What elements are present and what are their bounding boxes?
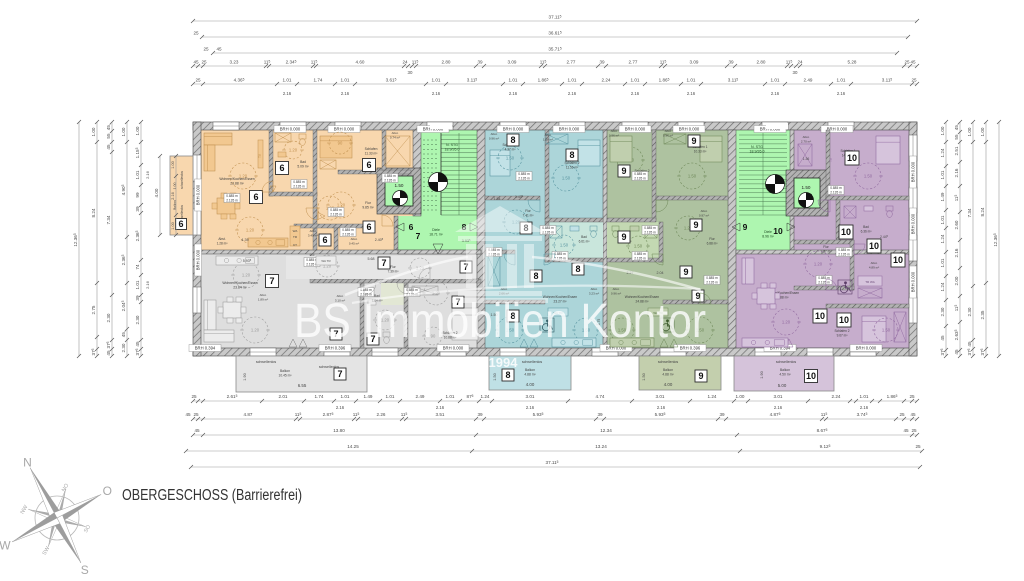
svg-text:45: 45 — [106, 144, 111, 150]
svg-text:4.88 m²: 4.88 m² — [524, 373, 536, 377]
svg-text:BRH 0.000: BRH 0.000 — [559, 127, 580, 132]
svg-text:2.60: 2.60 — [954, 220, 959, 229]
svg-text:2.16: 2.16 — [860, 405, 869, 410]
svg-text:7.34: 7.34 — [967, 208, 972, 217]
svg-text:2.24: 2.24 — [602, 78, 611, 83]
svg-text:55: 55 — [106, 133, 111, 139]
svg-text:2.135 m: 2.135 m — [518, 176, 530, 180]
svg-text:1.00: 1.00 — [173, 183, 177, 190]
svg-text:8.24: 8.24 — [980, 207, 985, 216]
svg-text:2.16: 2.16 — [171, 192, 175, 199]
svg-text:10: 10 — [815, 311, 825, 321]
svg-text:2.16: 2.16 — [283, 91, 292, 96]
svg-text:10: 10 — [841, 227, 851, 237]
svg-text:6.36 m²: 6.36 m² — [861, 230, 872, 234]
svg-text:10: 10 — [847, 153, 857, 163]
svg-text:Abst.: Abst. — [491, 132, 498, 136]
svg-text:Balkon: Balkon — [173, 200, 177, 210]
svg-text:2.30: 2.30 — [940, 307, 945, 316]
svg-text:10: 10 — [773, 226, 783, 236]
svg-text:1.50: 1.50 — [642, 373, 646, 380]
svg-text:9: 9 — [743, 222, 748, 232]
svg-text:39: 39 — [477, 412, 483, 417]
svg-text:Balkon: Balkon — [663, 368, 673, 372]
svg-text:1.20: 1.20 — [242, 273, 251, 278]
svg-text:2.49: 2.49 — [416, 394, 425, 399]
svg-text:45: 45 — [967, 341, 972, 347]
svg-text:2.16: 2.16 — [568, 91, 577, 96]
svg-text:2.16: 2.16 — [771, 91, 780, 96]
svg-text:schwellenlos: schwellenlos — [776, 360, 797, 364]
svg-text:39: 39 — [135, 206, 140, 212]
svg-text:1.20: 1.20 — [814, 262, 823, 267]
svg-text:BRH 0.000: BRH 0.000 — [334, 127, 355, 132]
svg-text:45: 45 — [903, 428, 909, 433]
svg-text:25: 25 — [904, 60, 910, 65]
svg-text:45: 45 — [185, 412, 191, 417]
svg-text:1.90: 1.90 — [760, 371, 764, 378]
svg-text:2.16: 2.16 — [657, 405, 666, 410]
svg-text:2.16: 2.16 — [837, 91, 846, 96]
svg-text:1.50: 1.50 — [506, 156, 515, 161]
svg-text:N. STG: N. STG — [446, 143, 458, 147]
svg-text:7: 7 — [337, 369, 342, 379]
svg-text:2.16: 2.16 — [436, 405, 445, 410]
svg-text:4.00: 4.00 — [154, 188, 159, 197]
svg-text:6: 6 — [253, 192, 258, 202]
svg-text:1.74: 1.74 — [315, 394, 324, 399]
svg-text:2.35: 2.35 — [980, 310, 985, 319]
svg-text:2.16: 2.16 — [145, 170, 150, 179]
svg-text:Balkon: Balkon — [525, 368, 535, 372]
svg-text:1.20: 1.20 — [251, 328, 260, 333]
svg-text:1.00: 1.00 — [171, 161, 175, 168]
svg-text:23.88 m²: 23.88 m² — [230, 182, 244, 186]
svg-text:Flur: Flur — [365, 201, 372, 205]
svg-text:0.96 m²: 0.96 m² — [609, 134, 619, 138]
svg-text:1.00: 1.00 — [91, 127, 96, 136]
svg-text:1.50: 1.50 — [882, 328, 891, 333]
svg-text:Diele: Diele — [432, 228, 440, 232]
svg-text:2.80: 2.80 — [442, 60, 451, 65]
svg-text:45: 45 — [106, 350, 111, 356]
svg-text:2.135 m: 2.135 m — [542, 230, 554, 234]
svg-text:1.01: 1.01 — [283, 78, 292, 83]
svg-text:Wohnen/Kochen/Essen: Wohnen/Kochen/Essen — [219, 177, 254, 181]
svg-text:2.70 m²: 2.70 m² — [801, 140, 811, 144]
svg-text:1.24: 1.24 — [940, 234, 945, 243]
svg-text:2.80: 2.80 — [757, 60, 766, 65]
svg-text:9.67 m²: 9.67 m² — [837, 334, 848, 338]
svg-text:39: 39 — [135, 295, 140, 301]
svg-text:1.50: 1.50 — [395, 183, 404, 188]
svg-text:4.39: 4.39 — [241, 238, 248, 242]
svg-text:45: 45 — [910, 412, 916, 417]
svg-text:Abst.: Abst. — [218, 237, 225, 241]
svg-text:10: 10 — [893, 255, 903, 265]
svg-text:Bad: Bad — [300, 160, 306, 164]
svg-text:12.34: 12.34 — [600, 428, 612, 433]
svg-text:schwellenlos: schwellenlos — [180, 171, 184, 189]
svg-text:Abst.: Abst. — [803, 135, 810, 139]
svg-text:WA TR: WA TR — [321, 259, 331, 263]
svg-text:BRH 0.000: BRH 0.000 — [280, 127, 301, 132]
svg-text:4.60: 4.60 — [356, 60, 365, 65]
svg-text:8: 8 — [533, 271, 538, 281]
svg-text:2.04: 2.04 — [657, 271, 664, 275]
svg-text:7: 7 — [269, 276, 274, 286]
svg-text:6: 6 — [178, 219, 183, 229]
svg-text:10.33 m²: 10.33 m² — [694, 150, 707, 154]
svg-text:8.24: 8.24 — [91, 208, 96, 217]
svg-text:1.00: 1.00 — [135, 126, 140, 135]
svg-text:0.96 m²: 0.96 m² — [663, 134, 673, 138]
svg-text:1.90: 1.90 — [243, 373, 247, 380]
svg-text:6: 6 — [409, 222, 414, 232]
svg-text:1.01: 1.01 — [631, 78, 640, 83]
svg-text:6: 6 — [366, 160, 371, 170]
svg-text:9.85 m²: 9.85 m² — [362, 206, 374, 210]
svg-text:2.135 m: 2.135 m — [330, 212, 342, 216]
svg-text:2.16: 2.16 — [336, 405, 345, 410]
svg-text:Diele: Diele — [764, 230, 772, 234]
svg-text:25: 25 — [193, 31, 199, 36]
svg-text:Flur: Flur — [390, 265, 396, 269]
svg-text:9: 9 — [621, 166, 626, 176]
svg-text:1.36: 1.36 — [803, 157, 810, 161]
svg-text:BRH 0.394: BRH 0.394 — [195, 346, 216, 351]
svg-text:2.135 m: 2.135 m — [706, 280, 718, 284]
svg-text:S: S — [81, 563, 89, 577]
svg-text:39: 39 — [599, 60, 605, 65]
svg-text:1.01: 1.01 — [940, 258, 945, 267]
svg-text:2.16: 2.16 — [145, 280, 150, 289]
svg-text:1.01: 1.01 — [386, 394, 395, 399]
svg-text:55: 55 — [954, 134, 959, 140]
svg-text:1.28 m²: 1.28 m² — [217, 242, 228, 246]
svg-text:3.51: 3.51 — [436, 412, 445, 417]
svg-text:5.00: 5.00 — [778, 383, 787, 388]
svg-text:1.28 m²: 1.28 m² — [543, 138, 553, 142]
svg-text:Schlafen 2: Schlafen 2 — [564, 161, 579, 165]
svg-text:2.51: 2.51 — [954, 146, 959, 155]
svg-text:6: 6 — [322, 235, 327, 245]
svg-text:25: 25 — [909, 394, 915, 399]
svg-text:N: N — [23, 455, 32, 469]
svg-text:2.30: 2.30 — [135, 315, 140, 324]
svg-text:Bad: Bad — [581, 235, 587, 239]
svg-text:schwellenlos: schwellenlos — [256, 360, 277, 364]
svg-text:14.25: 14.25 — [347, 444, 359, 449]
svg-text:74: 74 — [135, 264, 140, 270]
svg-text:11.56 m²: 11.56 m² — [566, 166, 578, 170]
svg-text:45: 45 — [954, 349, 959, 355]
svg-text:2.77: 2.77 — [629, 60, 638, 65]
svg-text:25: 25 — [911, 78, 917, 83]
svg-text:BRH 0.000: BRH 0.000 — [911, 213, 916, 234]
svg-text:11.33 m²: 11.33 m² — [365, 152, 379, 156]
svg-text:2.135 m: 2.135 m — [342, 232, 354, 236]
svg-text:1.20: 1.20 — [246, 228, 255, 233]
svg-text:KT: KT — [293, 243, 297, 247]
svg-text:2.75: 2.75 — [91, 305, 96, 314]
svg-text:25: 25 — [899, 412, 905, 417]
svg-text:8: 8 — [575, 264, 580, 274]
svg-text:1.01: 1.01 — [568, 78, 577, 83]
svg-text:23.84 m²: 23.84 m² — [233, 286, 247, 290]
svg-text:36.615: 36.615 — [548, 30, 562, 35]
svg-text:N. STG: N. STG — [751, 145, 763, 149]
svg-text:Balkon: Balkon — [280, 369, 290, 373]
svg-text:12.365: 12.365 — [73, 233, 78, 247]
svg-text:1.50: 1.50 — [562, 176, 571, 181]
svg-text:2.135 m: 2.135 m — [634, 176, 646, 180]
svg-text:Abst.: Abst. — [613, 287, 620, 291]
svg-text:7.41 m²: 7.41 m² — [523, 214, 534, 218]
svg-text:7.39 m²: 7.39 m² — [388, 270, 399, 274]
svg-text:BRH 0.000: BRH 0.000 — [911, 271, 916, 292]
svg-text:Abst.: Abst. — [260, 293, 267, 297]
svg-text:Abst.: Abst. — [310, 229, 317, 233]
svg-text:1.50: 1.50 — [560, 243, 569, 248]
svg-text:25: 25 — [915, 444, 921, 449]
svg-text:3.01: 3.01 — [774, 394, 783, 399]
svg-text:4.88 m²: 4.88 m² — [662, 373, 674, 377]
svg-text:1.24: 1.24 — [708, 394, 717, 399]
svg-text:2.26: 2.26 — [377, 412, 386, 417]
svg-text:25: 25 — [193, 412, 199, 417]
svg-text:2.135 m: 2.135 m — [293, 184, 305, 188]
svg-text:BRH 0.000: BRH 0.000 — [625, 127, 646, 132]
svg-text:Abst.: Abst. — [351, 237, 358, 241]
svg-text:45,: 45, — [106, 124, 111, 130]
svg-text:1.01: 1.01 — [135, 280, 140, 289]
svg-text:8: 8 — [569, 150, 574, 160]
svg-text:3.23: 3.23 — [230, 60, 239, 65]
svg-text:Abst.: Abst. — [545, 133, 552, 137]
svg-text:18.71 m²: 18.71 m² — [429, 233, 443, 237]
svg-text:seit 1994: seit 1994 — [463, 355, 519, 370]
svg-text:1.01: 1.01 — [341, 78, 350, 83]
svg-text:2.16: 2.16 — [774, 405, 783, 410]
svg-text:45: 45 — [940, 335, 945, 341]
svg-text:2.30: 2.30 — [967, 307, 972, 316]
svg-text:OBERGESCHOSS (Barrierefrei): OBERGESCHOSS (Barrierefrei) — [122, 487, 302, 504]
svg-text:0.97 m²: 0.97 m² — [699, 214, 709, 218]
svg-text:9: 9 — [698, 371, 703, 381]
svg-text:2.30: 2.30 — [106, 313, 111, 322]
svg-text:3.01: 3.01 — [526, 394, 535, 399]
svg-text:7: 7 — [381, 258, 386, 268]
svg-text:1.01: 1.01 — [509, 78, 518, 83]
svg-text:1.01: 1.01 — [860, 394, 869, 399]
svg-text:25: 25 — [911, 428, 917, 433]
svg-text:Bad: Bad — [863, 225, 869, 229]
svg-text:2.16: 2.16 — [509, 91, 518, 96]
svg-text:1.20: 1.20 — [337, 203, 346, 208]
svg-text:1.01: 1.01 — [940, 215, 945, 224]
svg-text:9: 9 — [683, 267, 688, 277]
svg-text:Wohnen/Kochen/Essen: Wohnen/Kochen/Essen — [222, 281, 257, 285]
svg-text:6: 6 — [279, 163, 284, 173]
svg-text:4.00: 4.00 — [526, 382, 535, 387]
svg-text:1.50: 1.50 — [493, 373, 497, 380]
svg-text:1.24: 1.24 — [481, 394, 490, 399]
svg-text:5.68: 5.68 — [368, 257, 375, 261]
svg-text:2.16: 2.16 — [526, 405, 535, 410]
svg-text:45: 45 — [135, 341, 140, 347]
svg-text:2.135 m: 2.135 m — [634, 256, 646, 260]
svg-text:7: 7 — [416, 231, 421, 241]
svg-text:1.50: 1.50 — [802, 185, 811, 190]
svg-text:2.135 m: 2.135 m — [818, 280, 830, 284]
svg-text:45: 45 — [193, 60, 199, 65]
svg-text:2.16: 2.16 — [631, 91, 640, 96]
svg-text:Schlafen: Schlafen — [365, 147, 378, 151]
svg-text:1.01: 1.01 — [432, 78, 441, 83]
svg-text:39: 39 — [728, 60, 734, 65]
svg-text:BS Immobilien Kontor: BS Immobilien Kontor — [294, 295, 706, 348]
svg-text:Flur: Flur — [525, 209, 531, 213]
svg-text:Abst.: Abst. — [665, 129, 672, 133]
svg-text:45: 45 — [910, 60, 916, 65]
svg-text:6.88 m²: 6.88 m² — [707, 242, 718, 246]
svg-text:13.80: 13.80 — [333, 428, 345, 433]
svg-text:1.74: 1.74 — [314, 78, 323, 83]
svg-text:18.9/26.0: 18.9/26.0 — [750, 150, 765, 154]
svg-text:35.715: 35.715 — [548, 46, 562, 51]
svg-text:1.50: 1.50 — [634, 244, 643, 249]
svg-text:schwellenlos: schwellenlos — [658, 360, 679, 364]
svg-text:1.50: 1.50 — [688, 174, 697, 179]
svg-text:1.49: 1.49 — [940, 192, 945, 201]
svg-text:O: O — [103, 484, 112, 498]
svg-text:9: 9 — [621, 232, 626, 242]
svg-text:8: 8 — [505, 370, 510, 380]
svg-text:25: 25 — [203, 47, 209, 52]
svg-text:3.45 m²: 3.45 m² — [308, 234, 318, 238]
svg-text:30: 30 — [408, 70, 413, 75]
svg-text:BRH 0.000: BRH 0.000 — [911, 161, 916, 182]
svg-text:1.49: 1.49 — [364, 394, 373, 399]
svg-text:0.45 m²: 0.45 m² — [349, 242, 359, 246]
svg-text:Abst.: Abst. — [392, 131, 399, 135]
svg-text:5.28: 5.28 — [848, 60, 857, 65]
svg-text:1.24: 1.24 — [940, 148, 945, 157]
svg-text:6: 6 — [366, 222, 371, 232]
svg-text:13.24: 13.24 — [595, 444, 607, 449]
svg-text:2.135 m: 2.135 m — [830, 190, 842, 194]
svg-text:0.96 m²: 0.96 m² — [489, 137, 499, 141]
svg-text:2.16: 2.16 — [687, 91, 696, 96]
svg-text:39: 39 — [477, 60, 483, 65]
svg-text:2.135 m: 2.135 m — [838, 252, 850, 256]
svg-text:6.55: 6.55 — [298, 383, 307, 388]
svg-text:25: 25 — [195, 78, 201, 83]
svg-text:2.16: 2.16 — [954, 168, 959, 177]
svg-text:1.01: 1.01 — [837, 78, 846, 83]
svg-text:1.01: 1.01 — [687, 78, 696, 83]
svg-text:2.77: 2.77 — [567, 60, 576, 65]
svg-text:1.24: 1.24 — [940, 282, 945, 291]
svg-text:10: 10 — [869, 241, 879, 251]
svg-text:10: 10 — [839, 315, 849, 325]
svg-text:BRH 0.000: BRH 0.000 — [856, 346, 877, 351]
svg-text:BRH 0.000: BRH 0.000 — [196, 184, 201, 205]
svg-text:3.09: 3.09 — [508, 60, 517, 65]
svg-text:Balkon: Balkon — [780, 368, 790, 372]
svg-text:4.50 m²: 4.50 m² — [779, 373, 791, 377]
svg-text:1.01: 1.01 — [940, 170, 945, 179]
svg-text:4.74: 4.74 — [596, 394, 605, 399]
svg-text:1.01: 1.01 — [446, 394, 455, 399]
svg-text:9: 9 — [693, 220, 698, 230]
svg-text:Flur: Flur — [823, 245, 829, 249]
svg-text:1.00: 1.00 — [171, 222, 175, 229]
svg-text:1.00: 1.00 — [980, 127, 985, 136]
svg-text:3.01: 3.01 — [656, 394, 665, 399]
svg-text:1.01: 1.01 — [135, 170, 140, 179]
svg-text:schwellenlos: schwellenlos — [522, 360, 543, 364]
svg-text:1.00: 1.00 — [121, 127, 126, 136]
svg-text:BRH 0.000: BRH 0.000 — [196, 249, 201, 270]
svg-text:3.09: 3.09 — [690, 60, 699, 65]
svg-text:24: 24 — [402, 60, 408, 65]
svg-text:1.20: 1.20 — [782, 320, 791, 325]
svg-text:45,: 45, — [954, 124, 959, 130]
svg-text:10.45 m²: 10.45 m² — [278, 374, 292, 378]
svg-text:BRH 0.000: BRH 0.000 — [679, 127, 700, 132]
svg-text:4.37 m²: 4.37 m² — [505, 148, 516, 152]
svg-text:1.00: 1.00 — [967, 127, 972, 136]
svg-text:2.135 m: 2.135 m — [384, 178, 396, 182]
svg-text:Schlafen 2: Schlafen 2 — [834, 329, 849, 333]
svg-text:WA: WA — [293, 229, 298, 233]
svg-text:9: 9 — [691, 136, 696, 146]
svg-text:4.89 m²: 4.89 m² — [869, 266, 879, 270]
svg-text:1.01: 1.01 — [771, 78, 780, 83]
svg-text:2.24: 2.24 — [832, 394, 841, 399]
svg-text:2.30: 2.30 — [121, 343, 126, 352]
svg-text:Flur: Flur — [709, 237, 715, 241]
svg-text:Abst.: Abst. — [701, 209, 708, 213]
svg-text:Abst.: Abst. — [611, 129, 618, 133]
svg-text:45,: 45, — [121, 331, 126, 337]
svg-text:1.54: 1.54 — [494, 197, 501, 201]
svg-text:45: 45 — [194, 428, 200, 433]
svg-text:1.50: 1.50 — [864, 174, 873, 179]
svg-text:BRH 0.000: BRH 0.000 — [503, 127, 524, 132]
svg-text:2.16: 2.16 — [341, 91, 350, 96]
svg-text:4.87: 4.87 — [244, 412, 253, 417]
svg-text:2.16: 2.16 — [432, 91, 441, 96]
svg-text:2.49: 2.49 — [804, 78, 813, 83]
svg-text:1.00: 1.00 — [940, 126, 945, 135]
svg-text:W: W — [0, 539, 11, 553]
svg-text:30: 30 — [793, 70, 798, 75]
svg-text:39: 39 — [719, 412, 725, 417]
svg-text:2.00: 2.00 — [954, 276, 959, 285]
svg-text:2.135 m: 2.135 m — [226, 198, 238, 202]
svg-text:1.01: 1.01 — [341, 394, 350, 399]
svg-text:24: 24 — [797, 60, 803, 65]
svg-text:5.09 m²: 5.09 m² — [297, 165, 309, 169]
svg-text:1.00: 1.00 — [736, 394, 745, 399]
svg-text:1.89 m²: 1.89 m² — [258, 298, 268, 302]
svg-text:Abst.: Abst. — [591, 287, 598, 291]
svg-text:7.34: 7.34 — [106, 215, 111, 224]
svg-text:2.135 m: 2.135 m — [644, 230, 656, 234]
